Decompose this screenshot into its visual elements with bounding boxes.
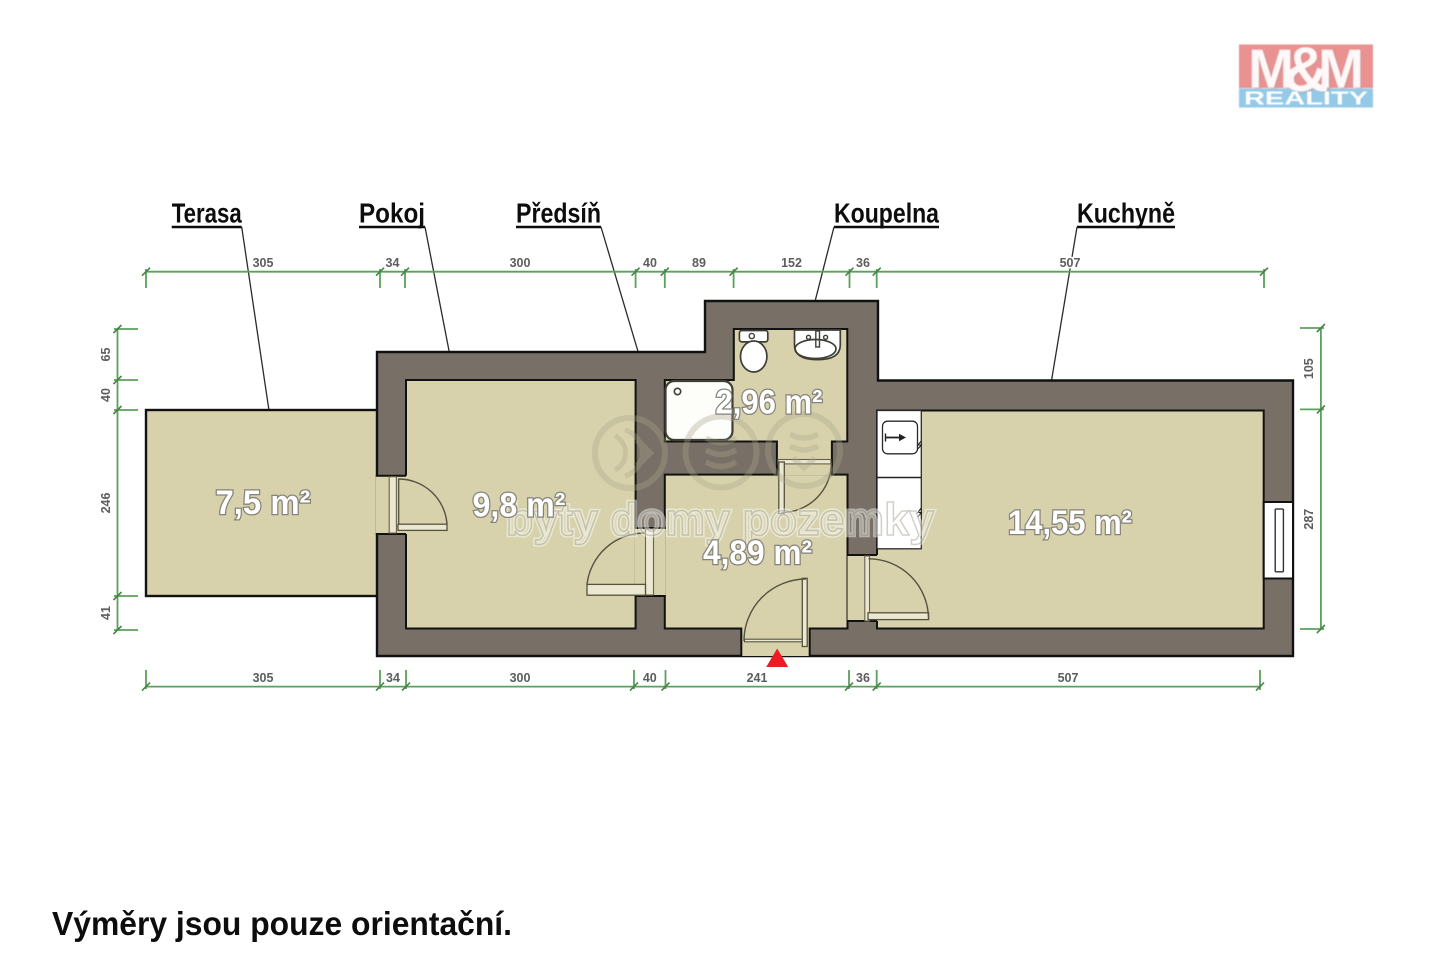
svg-text:40: 40 <box>99 388 113 402</box>
svg-text:305: 305 <box>253 256 274 270</box>
svg-text:Koupelna: Koupelna <box>834 198 939 229</box>
svg-text:105: 105 <box>1302 358 1316 379</box>
svg-text:Pokoj: Pokoj <box>359 198 425 229</box>
svg-text:246: 246 <box>99 493 113 514</box>
svg-text:507: 507 <box>1060 256 1081 270</box>
svg-text:36: 36 <box>856 256 870 270</box>
svg-text:300: 300 <box>510 671 531 685</box>
svg-text:41: 41 <box>99 606 113 620</box>
svg-text:300: 300 <box>510 256 531 270</box>
svg-text:9,8 m²: 9,8 m² <box>473 487 566 525</box>
svg-text:2,96 m²: 2,96 m² <box>716 384 823 422</box>
svg-text:Předsíň: Předsíň <box>516 198 601 229</box>
svg-text:241: 241 <box>747 671 768 685</box>
svg-text:34: 34 <box>386 671 400 685</box>
svg-text:305: 305 <box>253 671 274 685</box>
svg-text:14,55 m²: 14,55 m² <box>1008 504 1132 542</box>
svg-text:36: 36 <box>856 671 870 685</box>
svg-text:287: 287 <box>1302 509 1316 530</box>
svg-text:7,5 m²: 7,5 m² <box>216 484 311 522</box>
svg-text:65: 65 <box>99 348 113 362</box>
svg-text:40: 40 <box>643 256 657 270</box>
svg-text:4,89 m²: 4,89 m² <box>703 534 812 572</box>
svg-text:89: 89 <box>692 256 706 270</box>
svg-text:REALITY: REALITY <box>1244 89 1368 109</box>
svg-text:Terasa: Terasa <box>172 198 242 229</box>
svg-text:Výměry jsou pouze orientační.: Výměry jsou pouze orientační. <box>52 905 512 942</box>
svg-text:40: 40 <box>643 671 657 685</box>
svg-text:34: 34 <box>386 256 400 270</box>
svg-text:152: 152 <box>781 256 802 270</box>
svg-text:507: 507 <box>1058 671 1079 685</box>
svg-text:Kuchyně: Kuchyně <box>1077 198 1175 229</box>
